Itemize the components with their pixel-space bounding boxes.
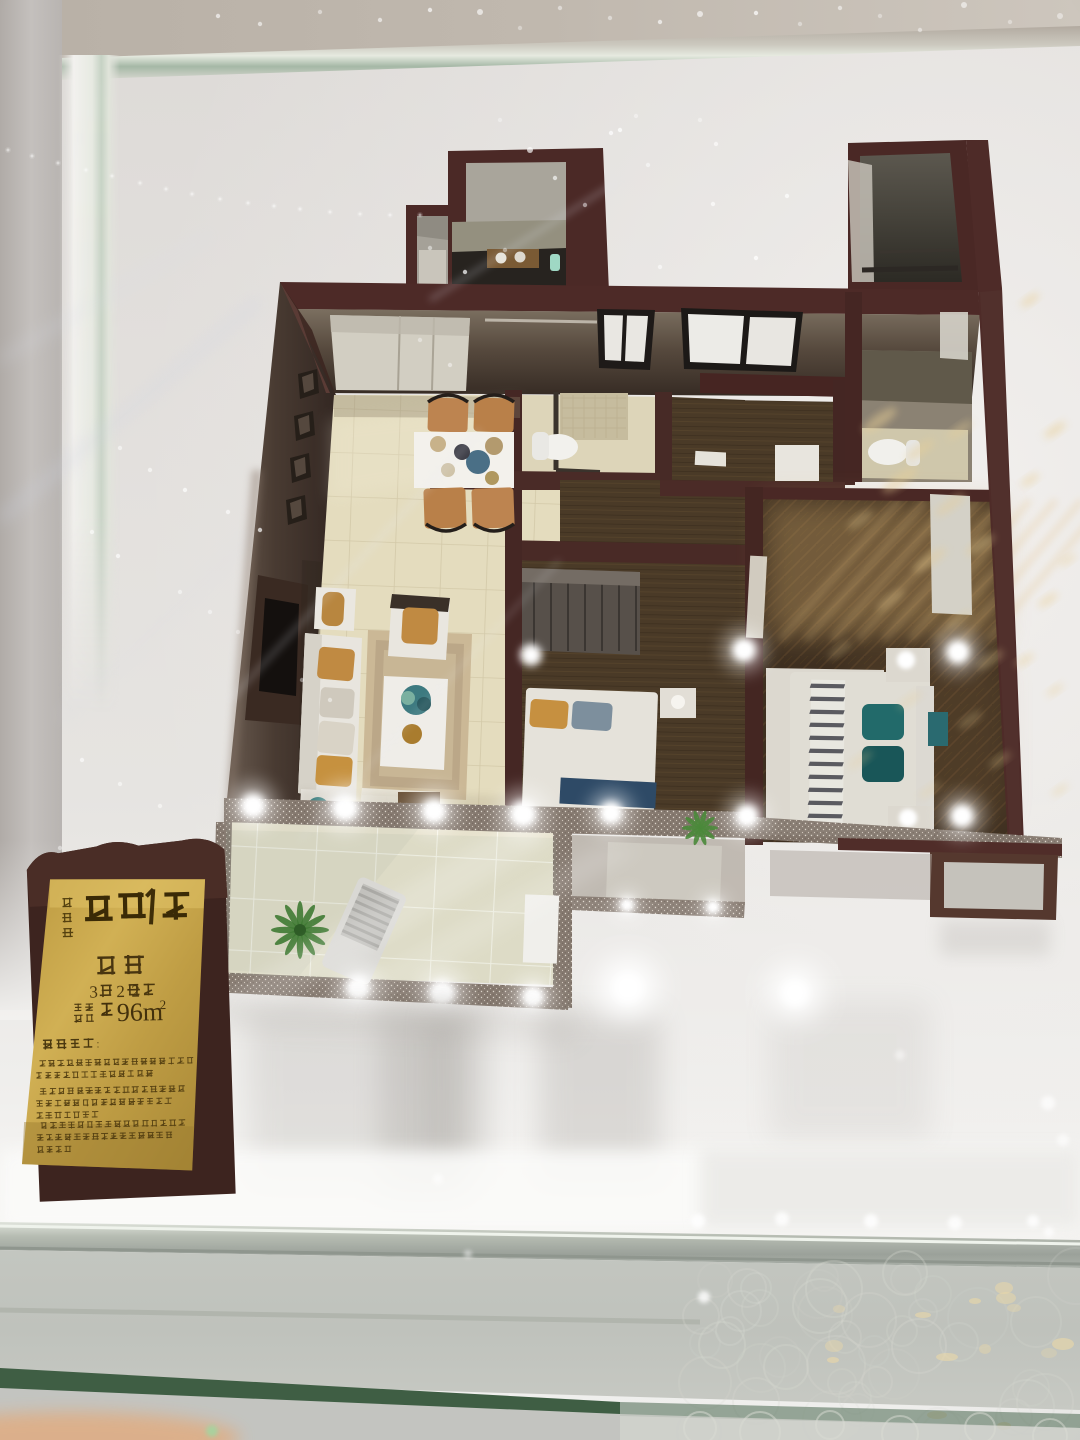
svg-text:3: 3 [89,982,98,1001]
svg-text:96m: 96m [117,997,164,1027]
svg-text:2: 2 [160,997,167,1012]
svg-text::: : [96,1039,99,1050]
